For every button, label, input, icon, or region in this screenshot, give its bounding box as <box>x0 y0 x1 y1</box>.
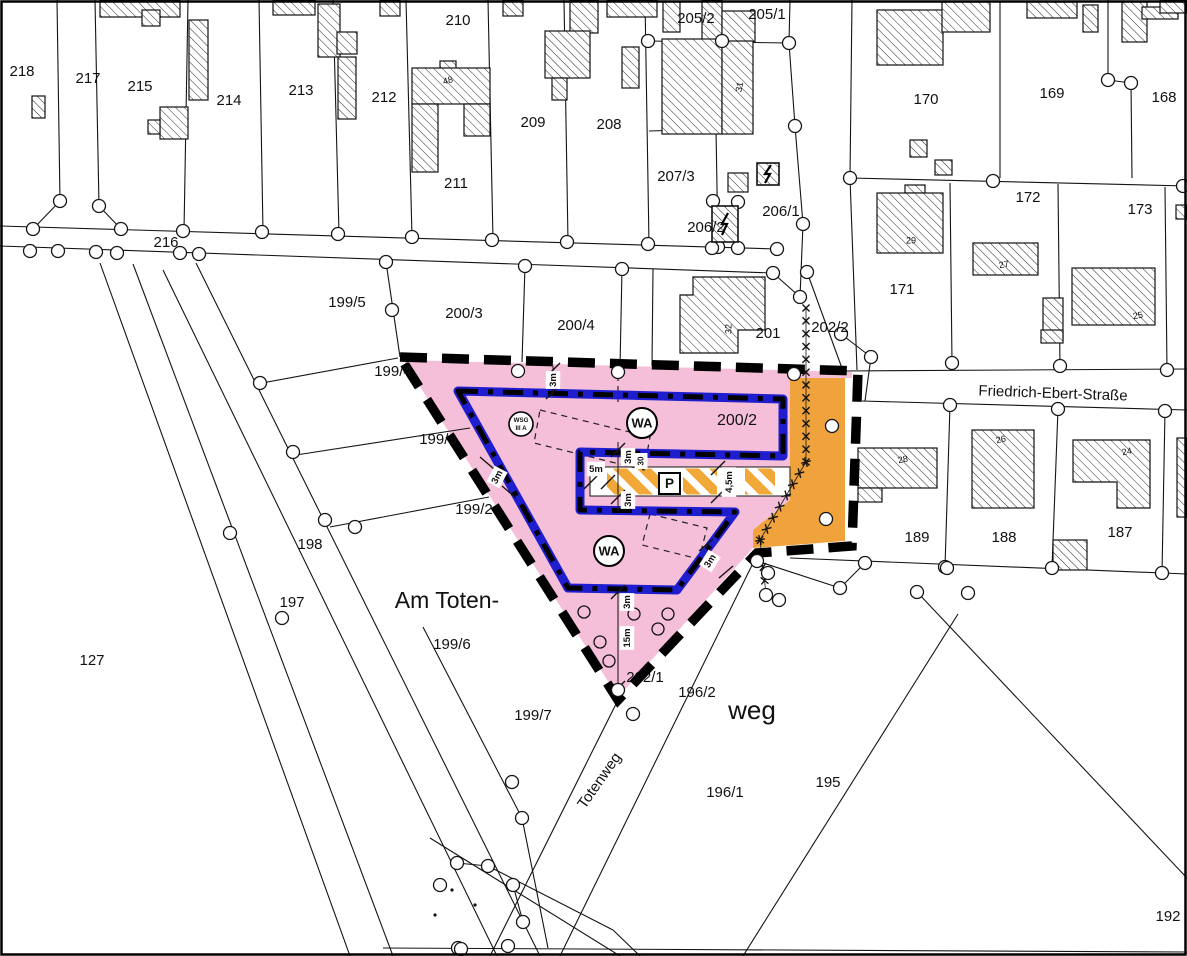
survey-point <box>946 357 959 370</box>
survey-point <box>111 247 124 260</box>
parcel-label-215: 215 <box>127 78 152 95</box>
survey-point <box>54 195 67 208</box>
parcel-label-199-7: 199/7 <box>514 707 552 724</box>
survey-point <box>1156 567 1169 580</box>
survey-point <box>987 175 1000 188</box>
survey-point <box>451 857 464 870</box>
house-number-label: 25 <box>1132 310 1144 322</box>
parcel-label-218: 218 <box>9 63 34 80</box>
house-number-label: 31 <box>734 81 746 93</box>
transformer-icon <box>757 163 779 185</box>
survey-point <box>820 513 833 526</box>
wsg-symbol-line2: III A <box>515 425 527 432</box>
parking-strip-stripes <box>745 469 775 495</box>
dimension-label: 3m <box>621 448 636 466</box>
parcel-label-187: 187 <box>1107 524 1132 541</box>
parcel-label-188: 188 <box>991 529 1016 546</box>
survey-point <box>627 708 640 721</box>
dimension-label: 15m <box>620 626 635 650</box>
survey-point <box>911 586 924 599</box>
parcel-label-200-3: 200/3 <box>445 305 483 322</box>
building <box>464 104 490 136</box>
survey-point <box>773 594 786 607</box>
parcel-label-195: 195 <box>815 774 840 791</box>
survey-point <box>794 291 807 304</box>
building <box>552 78 567 100</box>
survey-point <box>1159 405 1172 418</box>
building <box>32 96 45 118</box>
survey-point <box>561 236 574 249</box>
building <box>858 448 937 488</box>
parcel-label-196-2: 196/2 <box>678 684 716 701</box>
survey-point <box>516 812 529 825</box>
dimension-label-text: 30 <box>637 456 646 465</box>
survey-point <box>52 245 65 258</box>
survey-point <box>502 940 515 953</box>
parcel-label-217: 217 <box>75 70 100 87</box>
survey-point <box>406 231 419 244</box>
building <box>1027 2 1077 18</box>
parcel-label-199-4: 199/4 <box>374 363 412 380</box>
dimension-label: 3m <box>620 593 635 611</box>
parcel-label-205-2: 205/2 <box>677 10 715 27</box>
parcel-label-171: 171 <box>889 281 914 298</box>
survey-point <box>612 366 625 379</box>
survey-point <box>434 879 447 892</box>
survey-point <box>1046 562 1059 575</box>
building <box>877 10 943 65</box>
building <box>337 32 357 54</box>
survey-point <box>760 589 773 602</box>
parking-strip-layer <box>590 467 790 496</box>
survey-point <box>224 527 237 540</box>
boundary-dot <box>433 913 436 916</box>
parcel-label-169: 169 <box>1039 85 1064 102</box>
survey-point <box>386 304 399 317</box>
building <box>160 107 188 139</box>
survey-point <box>332 228 345 241</box>
parcel-label-206-1: 206/1 <box>762 203 800 220</box>
parcel-label-214: 214 <box>216 92 241 109</box>
house-number-label: 32 <box>723 324 733 334</box>
plan-page: 202/1PWAWAWSGIII A3m3m5m3m303m4,5m3m3m15… <box>0 0 1187 956</box>
survey-point <box>517 916 530 929</box>
survey-point <box>859 557 872 570</box>
house-number-label: 24 <box>1121 445 1133 457</box>
building <box>942 2 990 32</box>
parking-symbol-letter: P <box>665 476 674 491</box>
parking-strip-stripes <box>607 469 659 495</box>
parcel-label-199-6: 199/6 <box>433 636 471 653</box>
building <box>189 20 208 100</box>
survey-point <box>642 238 655 251</box>
survey-point <box>512 365 525 378</box>
dimension-label: 4,5m <box>722 467 737 497</box>
parcel-label-209: 209 <box>520 114 545 131</box>
building <box>412 104 438 172</box>
survey-point <box>24 245 37 258</box>
parcel-label-196-1: 196/1 <box>706 784 744 801</box>
building <box>905 185 925 193</box>
survey-point <box>865 351 878 364</box>
wa-symbol: WA <box>627 408 657 438</box>
survey-point <box>482 860 495 873</box>
parcel-label-192: 192 <box>1155 908 1180 925</box>
building <box>728 173 748 192</box>
parcel-label-207-3: 207/3 <box>657 168 695 185</box>
survey-point <box>762 567 775 580</box>
survey-point <box>771 243 784 256</box>
survey-point <box>944 399 957 412</box>
survey-point <box>616 263 629 276</box>
survey-point <box>826 420 839 433</box>
parcel-label-199-2: 199/2 <box>455 501 493 518</box>
wsg-symbol: WSGIII A <box>509 412 533 436</box>
building <box>1041 330 1063 343</box>
street-label: weg <box>727 695 776 725</box>
survey-point <box>276 612 289 625</box>
parcel-label-200-4: 200/4 <box>557 317 595 334</box>
parcel-label-198: 198 <box>297 536 322 553</box>
survey-point <box>706 242 719 255</box>
survey-point <box>256 226 269 239</box>
parcel-label-213: 213 <box>288 82 313 99</box>
parcel-label-170: 170 <box>913 91 938 108</box>
dimension-label-text: 5m <box>589 464 603 475</box>
parcel-label-201: 201 <box>755 325 780 342</box>
parcel-label-127: 127 <box>79 652 104 669</box>
boundary-dot <box>450 888 453 891</box>
parcel-label-199-5: 199/5 <box>328 294 366 311</box>
survey-point <box>1161 364 1174 377</box>
survey-point <box>380 256 393 269</box>
building <box>338 57 356 119</box>
survey-point <box>1054 360 1067 373</box>
building <box>570 0 598 33</box>
wa-symbol: WA <box>594 536 624 566</box>
wa-symbol-label: WA <box>632 415 654 430</box>
parcel-label-216: 216 <box>153 234 178 251</box>
survey-point <box>319 514 332 527</box>
parcel-label-202-2: 202/2 <box>811 319 849 336</box>
wa-symbol-label: WA <box>599 543 621 558</box>
parcel-label-210: 210 <box>445 12 470 29</box>
survey-point <box>788 368 801 381</box>
survey-point <box>612 684 625 697</box>
building <box>662 39 722 134</box>
survey-point <box>732 242 745 255</box>
survey-point <box>642 35 655 48</box>
parcel-label-208: 208 <box>596 116 621 133</box>
survey-point <box>1102 74 1115 87</box>
survey-point <box>93 200 106 213</box>
wsg-symbol-line1: WSG <box>514 417 529 424</box>
house-number-label: 27 <box>998 259 1010 271</box>
survey-point <box>115 223 128 236</box>
parcel-label-172: 172 <box>1015 189 1040 206</box>
house-number-label: 26 <box>995 433 1007 445</box>
street-label: Am Toten- <box>395 587 499 613</box>
building <box>935 160 952 175</box>
house-number-label: 28 <box>897 454 909 466</box>
parking-strip-stripes <box>683 469 717 495</box>
survey-point <box>962 587 975 600</box>
parking-symbol: P <box>659 473 680 494</box>
dimension-label-text: 3m <box>548 373 559 387</box>
survey-point <box>486 234 499 247</box>
survey-point <box>193 248 206 261</box>
dimension-label-text: 3m <box>623 493 634 507</box>
survey-point <box>941 562 954 575</box>
survey-point <box>27 223 40 236</box>
parcel-label-168: 168 <box>1151 89 1176 106</box>
building <box>1083 5 1098 32</box>
survey-point <box>716 35 729 48</box>
building <box>622 47 639 88</box>
parcel-label-211: 211 <box>444 175 468 192</box>
cadastral-map: 202/1PWAWAWSGIII A3m3m5m3m303m4,5m3m3m15… <box>0 0 1187 956</box>
survey-point <box>506 776 519 789</box>
dimension-label-text: 3m <box>622 595 633 609</box>
building <box>142 10 160 26</box>
survey-point <box>287 446 300 459</box>
survey-point <box>90 246 103 259</box>
survey-point <box>1125 77 1138 90</box>
survey-point <box>844 172 857 185</box>
survey-point <box>751 555 764 568</box>
dimension-label: 3m <box>621 491 636 509</box>
dimension-label: 5m <box>587 462 605 477</box>
dimension-label: 30 <box>635 453 648 469</box>
building <box>858 488 882 502</box>
survey-point <box>519 260 532 273</box>
parcel-label-212: 212 <box>371 89 396 106</box>
survey-point <box>349 521 362 534</box>
map-layers: 202/1PWAWAWSGIII A3m3m5m3m303m4,5m3m3m15… <box>0 0 1187 956</box>
dimension-label-text: 3m <box>623 450 634 464</box>
parcel-label-206-2: 206/2 <box>687 219 725 236</box>
parcel-label-205-1: 205/1 <box>748 6 786 23</box>
parcel-label-200-2: 200/2 <box>717 412 757 429</box>
dimension-label-text: 15m <box>622 628 633 647</box>
parcel-label-189: 189 <box>904 529 929 546</box>
survey-point <box>801 266 814 279</box>
boundary-dot <box>473 903 476 906</box>
survey-point <box>834 582 847 595</box>
house-number-label: 29 <box>906 235 916 245</box>
parcel-label-199-3: 199/3 <box>419 431 457 448</box>
survey-point <box>1052 403 1065 416</box>
dimension-label-text: 4,5m <box>724 471 735 493</box>
dimension-label: 3m <box>546 371 561 389</box>
survey-point <box>783 37 796 50</box>
building <box>545 31 590 78</box>
survey-point <box>789 120 802 133</box>
survey-point <box>767 267 780 280</box>
survey-point <box>254 377 267 390</box>
building <box>910 140 927 157</box>
parcel-label-197: 197 <box>279 594 304 611</box>
building <box>148 120 160 134</box>
survey-point <box>507 879 520 892</box>
parcel-label-173: 173 <box>1127 201 1152 218</box>
